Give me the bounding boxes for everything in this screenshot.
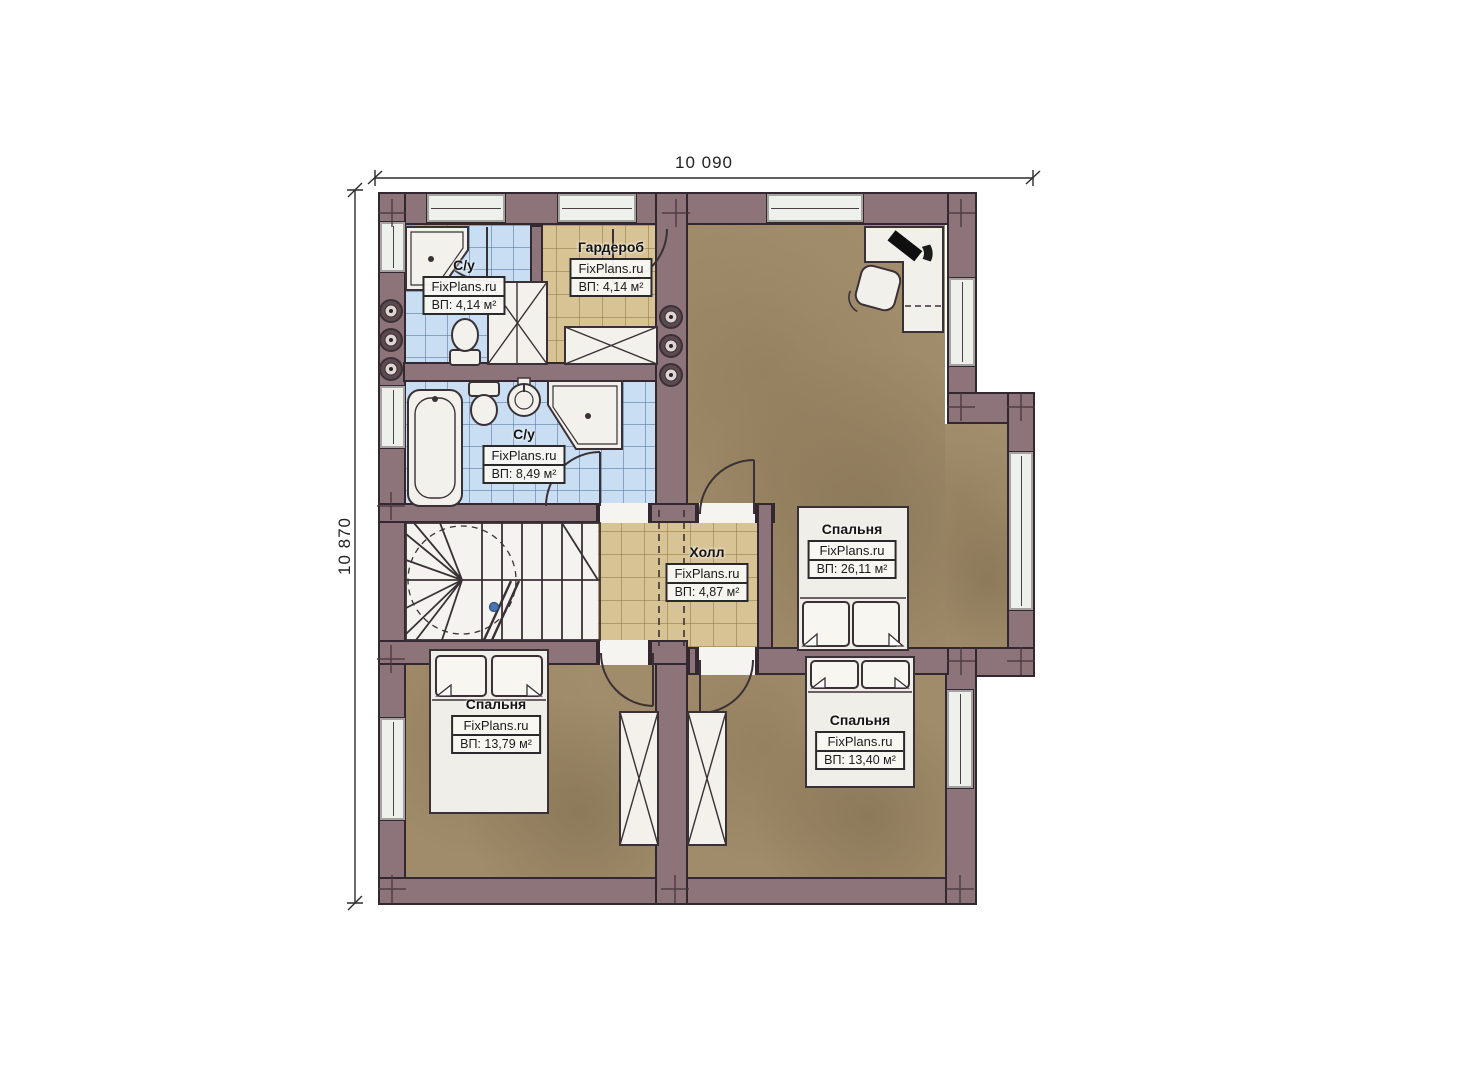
room-label-bedroom-right: Спальня FixPlans.ru ВП: 13,40 м² (815, 712, 905, 770)
window-left-1 (380, 222, 405, 272)
room-label-hall: Холл FixPlans.ru ВП: 4,87 м² (665, 544, 748, 602)
window-left-3 (380, 718, 405, 820)
wall-bedrooml-top (378, 640, 598, 665)
room-label-bedroom-left: Спальня FixPlans.ru ВП: 13,79 м² (451, 696, 541, 754)
floor-stairs (406, 523, 600, 640)
door-opening-bedroom-left (598, 640, 650, 665)
room-label-bedroom-master: Спальня FixPlans.ru ВП: 26,11 м² (808, 521, 897, 579)
room-name: Спальня (451, 696, 541, 712)
room-label-bath-top: С/у FixPlans.ru ВП: 4,14 м² (422, 257, 505, 315)
floor-bedroom-right (688, 675, 945, 877)
wall-bedroomr-top (757, 647, 949, 675)
door-opening-master (697, 503, 757, 523)
room-area: ВП: 8,49 м² (484, 464, 563, 482)
room-info-box: FixPlans.ru ВП: 4,87 м² (665, 563, 748, 602)
room-name: С/у (482, 426, 565, 442)
watermark-text: FixPlans.ru (453, 717, 539, 734)
room-label-bath-main: С/у FixPlans.ru ВП: 8,49 м² (482, 426, 565, 484)
wall-central-upper (655, 192, 688, 508)
window-left-2 (380, 386, 405, 448)
window-top-3 (767, 194, 863, 222)
room-info-box: FixPlans.ru ВП: 4,14 м² (422, 276, 505, 315)
window-right-upper (949, 278, 975, 366)
room-area: ВП: 13,79 м² (453, 734, 539, 752)
wall-bath-bottom (378, 503, 598, 523)
wall-bedrooml-top-mid (650, 640, 688, 665)
watermark-text: FixPlans.ru (817, 733, 903, 750)
room-area: ВП: 4,14 м² (424, 295, 503, 313)
watermark-text: FixPlans.ru (810, 542, 895, 559)
room-name: Гардероб (569, 239, 652, 255)
floor-bedroom-left (406, 662, 655, 877)
floor-plan-canvas: 10 090 10 870 С/у FixPlans.ru ВП: 4,14 м… (0, 0, 1473, 1080)
room-area: ВП: 4,14 м² (571, 277, 650, 295)
room-name: Спальня (808, 521, 897, 537)
room-area: ВП: 4,87 м² (667, 582, 746, 600)
room-info-box: FixPlans.ru ВП: 26,11 м² (808, 540, 897, 579)
wall-bedroomr-top-left (688, 647, 697, 675)
floor-bay (945, 424, 1007, 647)
room-name: С/у (422, 257, 505, 273)
wall-bath-wardrobe (530, 225, 543, 285)
room-info-box: FixPlans.ru ВП: 13,40 м² (815, 731, 905, 770)
watermark-text: FixPlans.ru (571, 260, 650, 277)
room-area: ВП: 26,11 м² (810, 559, 895, 577)
room-info-box: FixPlans.ru ВП: 4,14 м² (569, 258, 652, 297)
window-top-1 (427, 194, 505, 222)
window-bay (1009, 452, 1033, 610)
watermark-text: FixPlans.ru (667, 565, 746, 582)
dimension-left-label: 10 870 (335, 501, 355, 591)
window-top-2 (558, 194, 636, 222)
watermark-text: FixPlans.ru (484, 447, 563, 464)
wall-central-lower (655, 648, 688, 905)
room-info-box: FixPlans.ru ВП: 8,49 м² (482, 445, 565, 484)
door-opening-bedroom-right (697, 647, 757, 675)
room-name: Спальня (815, 712, 905, 728)
room-area: ВП: 13,40 м² (817, 750, 903, 768)
door-opening-bath-main (598, 503, 650, 523)
wall-hall-top-mid (650, 503, 697, 523)
room-label-wardrobe: Гардероб FixPlans.ru ВП: 4,14 м² (569, 239, 652, 297)
wall-hall-right (757, 503, 773, 650)
room-name: Холл (665, 544, 748, 560)
window-right-lower (947, 690, 973, 788)
room-info-box: FixPlans.ru ВП: 13,79 м² (451, 715, 541, 754)
watermark-text: FixPlans.ru (424, 278, 503, 295)
dimension-top-label: 10 090 (654, 153, 754, 173)
wall-bath-divider (403, 362, 657, 382)
